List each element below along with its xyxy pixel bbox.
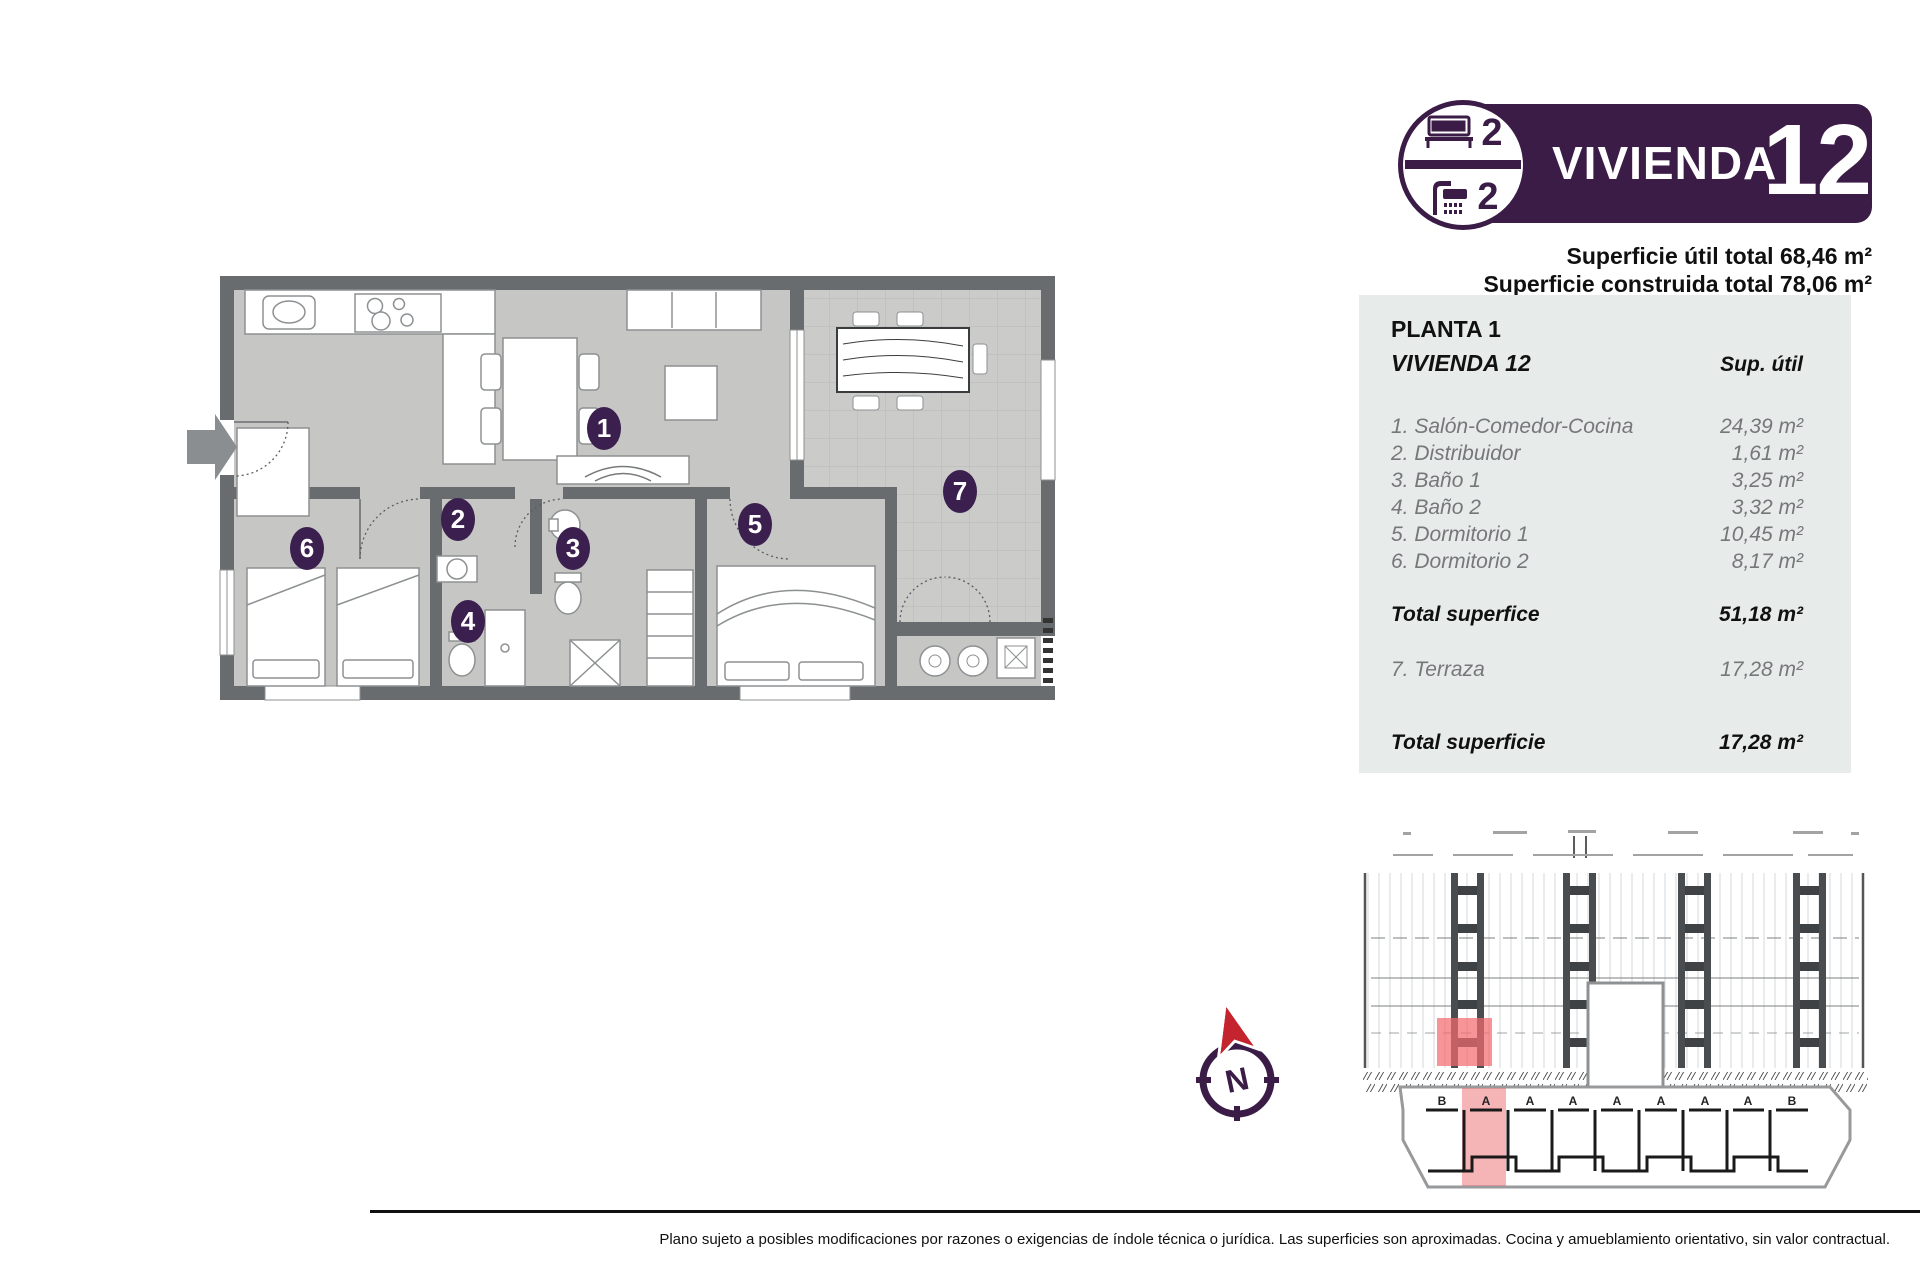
room-badge-6: 6 — [290, 527, 324, 570]
north-label: N — [1222, 1060, 1252, 1100]
svg-text:A: A — [1701, 1094, 1710, 1108]
table-row: 2. Distribuidor1,61 m² — [1391, 440, 1803, 467]
north-arrow-icon — [1210, 1003, 1254, 1054]
room-badge-1: 1 — [587, 407, 621, 450]
table-row: 6. Dormitorio 28,17 m² — [1391, 548, 1803, 575]
svg-text:A: A — [1569, 1094, 1578, 1108]
unit-title: VIVIENDA — [1552, 136, 1777, 190]
room-badge-2: 2 — [441, 498, 475, 541]
superficie-construida-total: Superficie construida total 78,06 m² — [1483, 271, 1872, 298]
sofa — [627, 290, 761, 330]
tv-unit — [557, 456, 689, 484]
unit-label: VIVIENDA 12 — [1391, 350, 1531, 377]
bathrooms-row: 2 — [1403, 171, 1523, 223]
svg-text:A: A — [1657, 1094, 1666, 1108]
bedroom5-bed — [717, 566, 875, 686]
coffee-table — [665, 366, 717, 420]
superficie-util-total: Superficie útil total 68,46 m² — [1567, 243, 1872, 270]
dryer — [958, 646, 988, 676]
terraza-row: 7. Terraza 17,28 m² — [1391, 656, 1803, 683]
fridge — [237, 428, 309, 516]
footer-divider — [370, 1210, 1920, 1213]
footer-disclaimer: Plano sujeto a posibles modificaciones p… — [659, 1231, 1890, 1248]
plan-sheet: 2 2 VIVIENDA 12 Superficie útil tota — [0, 0, 1920, 1280]
bed-icon — [1423, 115, 1475, 151]
washer — [920, 646, 950, 676]
bedrooms-row: 2 — [1403, 107, 1523, 159]
floor-plan — [185, 270, 1065, 705]
svg-text:A: A — [1613, 1094, 1622, 1108]
site-tower — [1588, 983, 1663, 1087]
total-terraza-row: Total superficie 17,28 m² — [1391, 729, 1803, 756]
svg-text:B: B — [1788, 1094, 1797, 1108]
column-header: Sup. útil — [1720, 353, 1803, 377]
toilet — [555, 582, 581, 614]
wardrobe — [647, 570, 693, 686]
sink — [447, 559, 467, 579]
shower-icon — [1427, 177, 1471, 217]
svg-text:A: A — [1744, 1094, 1753, 1108]
table-row: 5. Dormitorio 110,45 m² — [1391, 521, 1803, 548]
floor-label: PLANTA 1 — [1391, 316, 1803, 343]
north-compass: N — [1190, 998, 1285, 1133]
room-badge-4: 4 — [451, 600, 485, 643]
dining-table — [503, 338, 577, 460]
svg-text:B: B — [1438, 1094, 1447, 1108]
table-row: 1. Salón-Comedor-Cocina24,39 m² — [1391, 413, 1803, 440]
unit-features-circle: 2 2 — [1398, 100, 1528, 230]
room-badge-3: 3 — [556, 527, 590, 570]
site-plan: B A A A A A A A B — [1370, 975, 1860, 1200]
bathrooms-count: 2 — [1477, 178, 1498, 216]
circle-divider — [1405, 160, 1521, 169]
unit-number: 12 — [1763, 110, 1870, 210]
room-badge-5: 5 — [738, 503, 772, 546]
table-row: 4. Baño 23,32 m² — [1391, 494, 1803, 521]
bedrooms-count: 2 — [1481, 114, 1502, 152]
total-interior-row: Total superfice 51,18 m² — [1391, 601, 1803, 628]
room-badge-7: 7 — [943, 470, 977, 513]
svg-text:A: A — [1482, 1094, 1491, 1108]
table-row: 3. Baño 13,25 m² — [1391, 467, 1803, 494]
roof-marks — [1393, 830, 1859, 858]
areas-panel: PLANTA 1 VIVIENDA 12 Sup. útil 1. Salón-… — [1359, 295, 1851, 773]
svg-text:A: A — [1526, 1094, 1535, 1108]
toilet — [449, 644, 475, 676]
